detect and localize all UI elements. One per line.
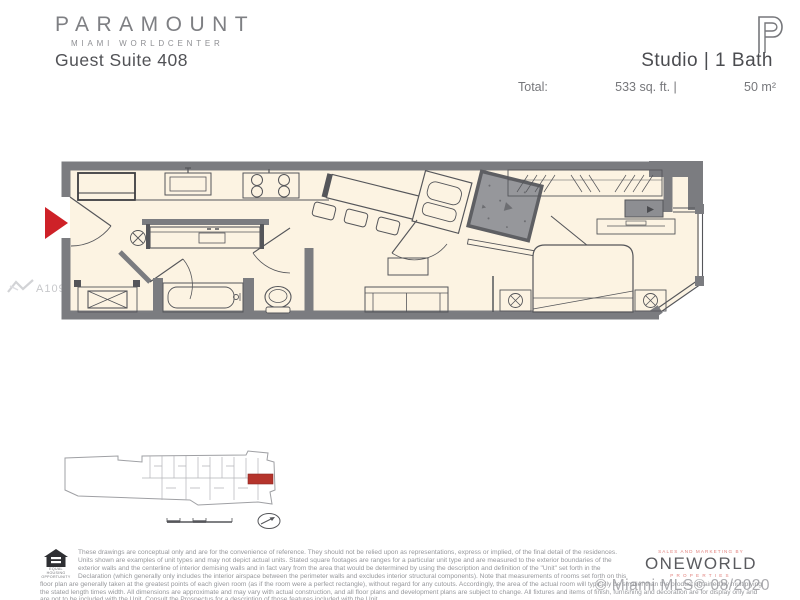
vanity-sink: [199, 233, 225, 243]
company-name: ONEWORLD: [640, 555, 762, 572]
toilet: [265, 287, 291, 314]
north-arrow-icon: [258, 514, 280, 529]
bed: [533, 245, 633, 312]
total-label: Total:: [518, 80, 548, 94]
oneworld-logo: SALES AND MARKETING BY ONEWORLD PROPERTI…: [640, 549, 762, 578]
brand-name: PARAMOUNT: [55, 13, 255, 37]
bathroom-vanity: [150, 227, 260, 248]
refrigerator: [78, 173, 135, 200]
total-sqft: 533 sq. ft. |: [615, 80, 677, 94]
floorplan-drawing: [37, 158, 707, 333]
brand-subtitle: MIAMI WORLDCENTER: [55, 39, 255, 48]
unit-type: Studio | 1 Bath: [473, 50, 773, 72]
unit-highlight: [248, 474, 273, 484]
watermark-logo-icon: [6, 278, 36, 296]
mls-watermark: © Miami MLS© 08/2020: [595, 577, 770, 595]
entry-arrow-icon: [45, 207, 68, 239]
unit-totals: Total: 533 sq. ft. | 50 m²: [518, 80, 776, 94]
page-title: Guest Suite 408: [55, 50, 188, 71]
total-m2: 50 m²: [744, 80, 776, 94]
brand-block: PARAMOUNT MIAMI WORLDCENTER: [55, 13, 255, 48]
tv-console: [625, 200, 663, 217]
building-keyplan: [62, 448, 297, 548]
paramount-p-logo-icon: [752, 14, 790, 54]
equal-housing-logo: EQUAL HOUSING OPPORTUNITY: [40, 549, 72, 580]
equal-housing-caption2: OPPORTUNITY: [40, 576, 72, 580]
floorplan-sheet: PARAMOUNT MIAMI WORLDCENTER Guest Suite …: [0, 0, 800, 600]
scale-bar: [167, 518, 232, 523]
